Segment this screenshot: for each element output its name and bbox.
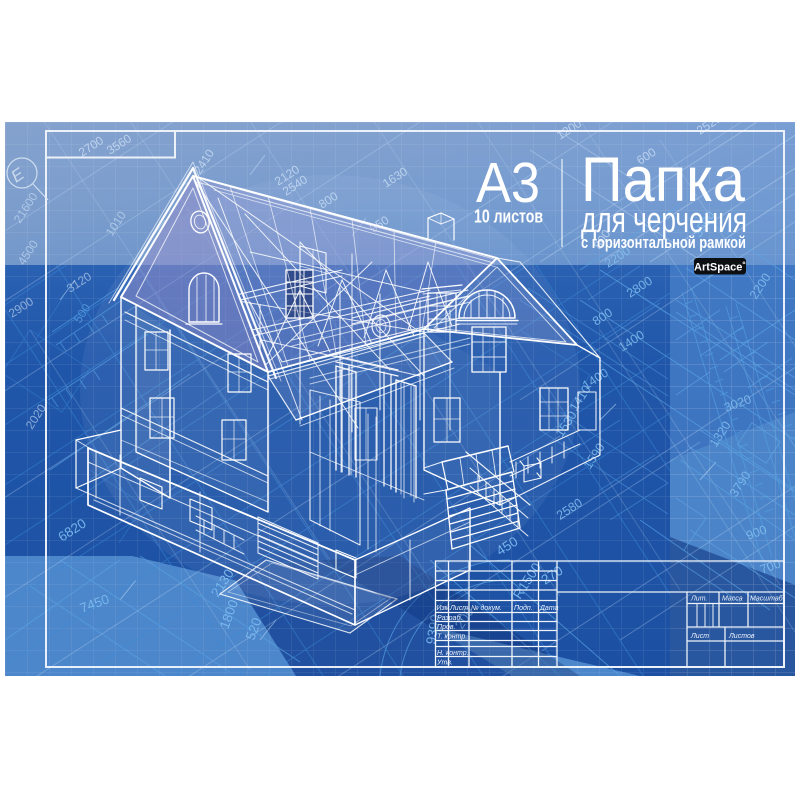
svg-text:Листов: Листов — [728, 633, 755, 640]
svg-text:Лист: Лист — [690, 633, 709, 640]
svg-text:А3: А3 — [476, 151, 540, 215]
svg-text:Лист: Лист — [449, 605, 468, 612]
svg-text:Н. контр.: Н. контр. — [437, 650, 469, 657]
svg-text:Т. контр.: Т. контр. — [437, 634, 467, 641]
svg-text:Дата: Дата — [539, 605, 559, 612]
svg-text:Масштаб: Масштаб — [750, 595, 784, 603]
svg-text:Лит.: Лит. — [690, 596, 707, 603]
svg-text:с горизонтальной рамкой: с горизонтальной рамкой — [581, 234, 746, 252]
svg-text:Утв.: Утв. — [436, 660, 453, 667]
svg-text:№ докум.: № докум. — [471, 604, 502, 612]
svg-text:Масса: Масса — [722, 596, 743, 603]
svg-text:Подп.: Подп. — [514, 604, 533, 612]
svg-text:10 листов: 10 листов — [474, 207, 543, 227]
svg-text:Разраб.: Разраб. — [437, 614, 462, 622]
svg-text:ArtSpace˚: ArtSpace˚ — [694, 262, 746, 274]
svg-text:Пров.: Пров. — [437, 624, 456, 631]
